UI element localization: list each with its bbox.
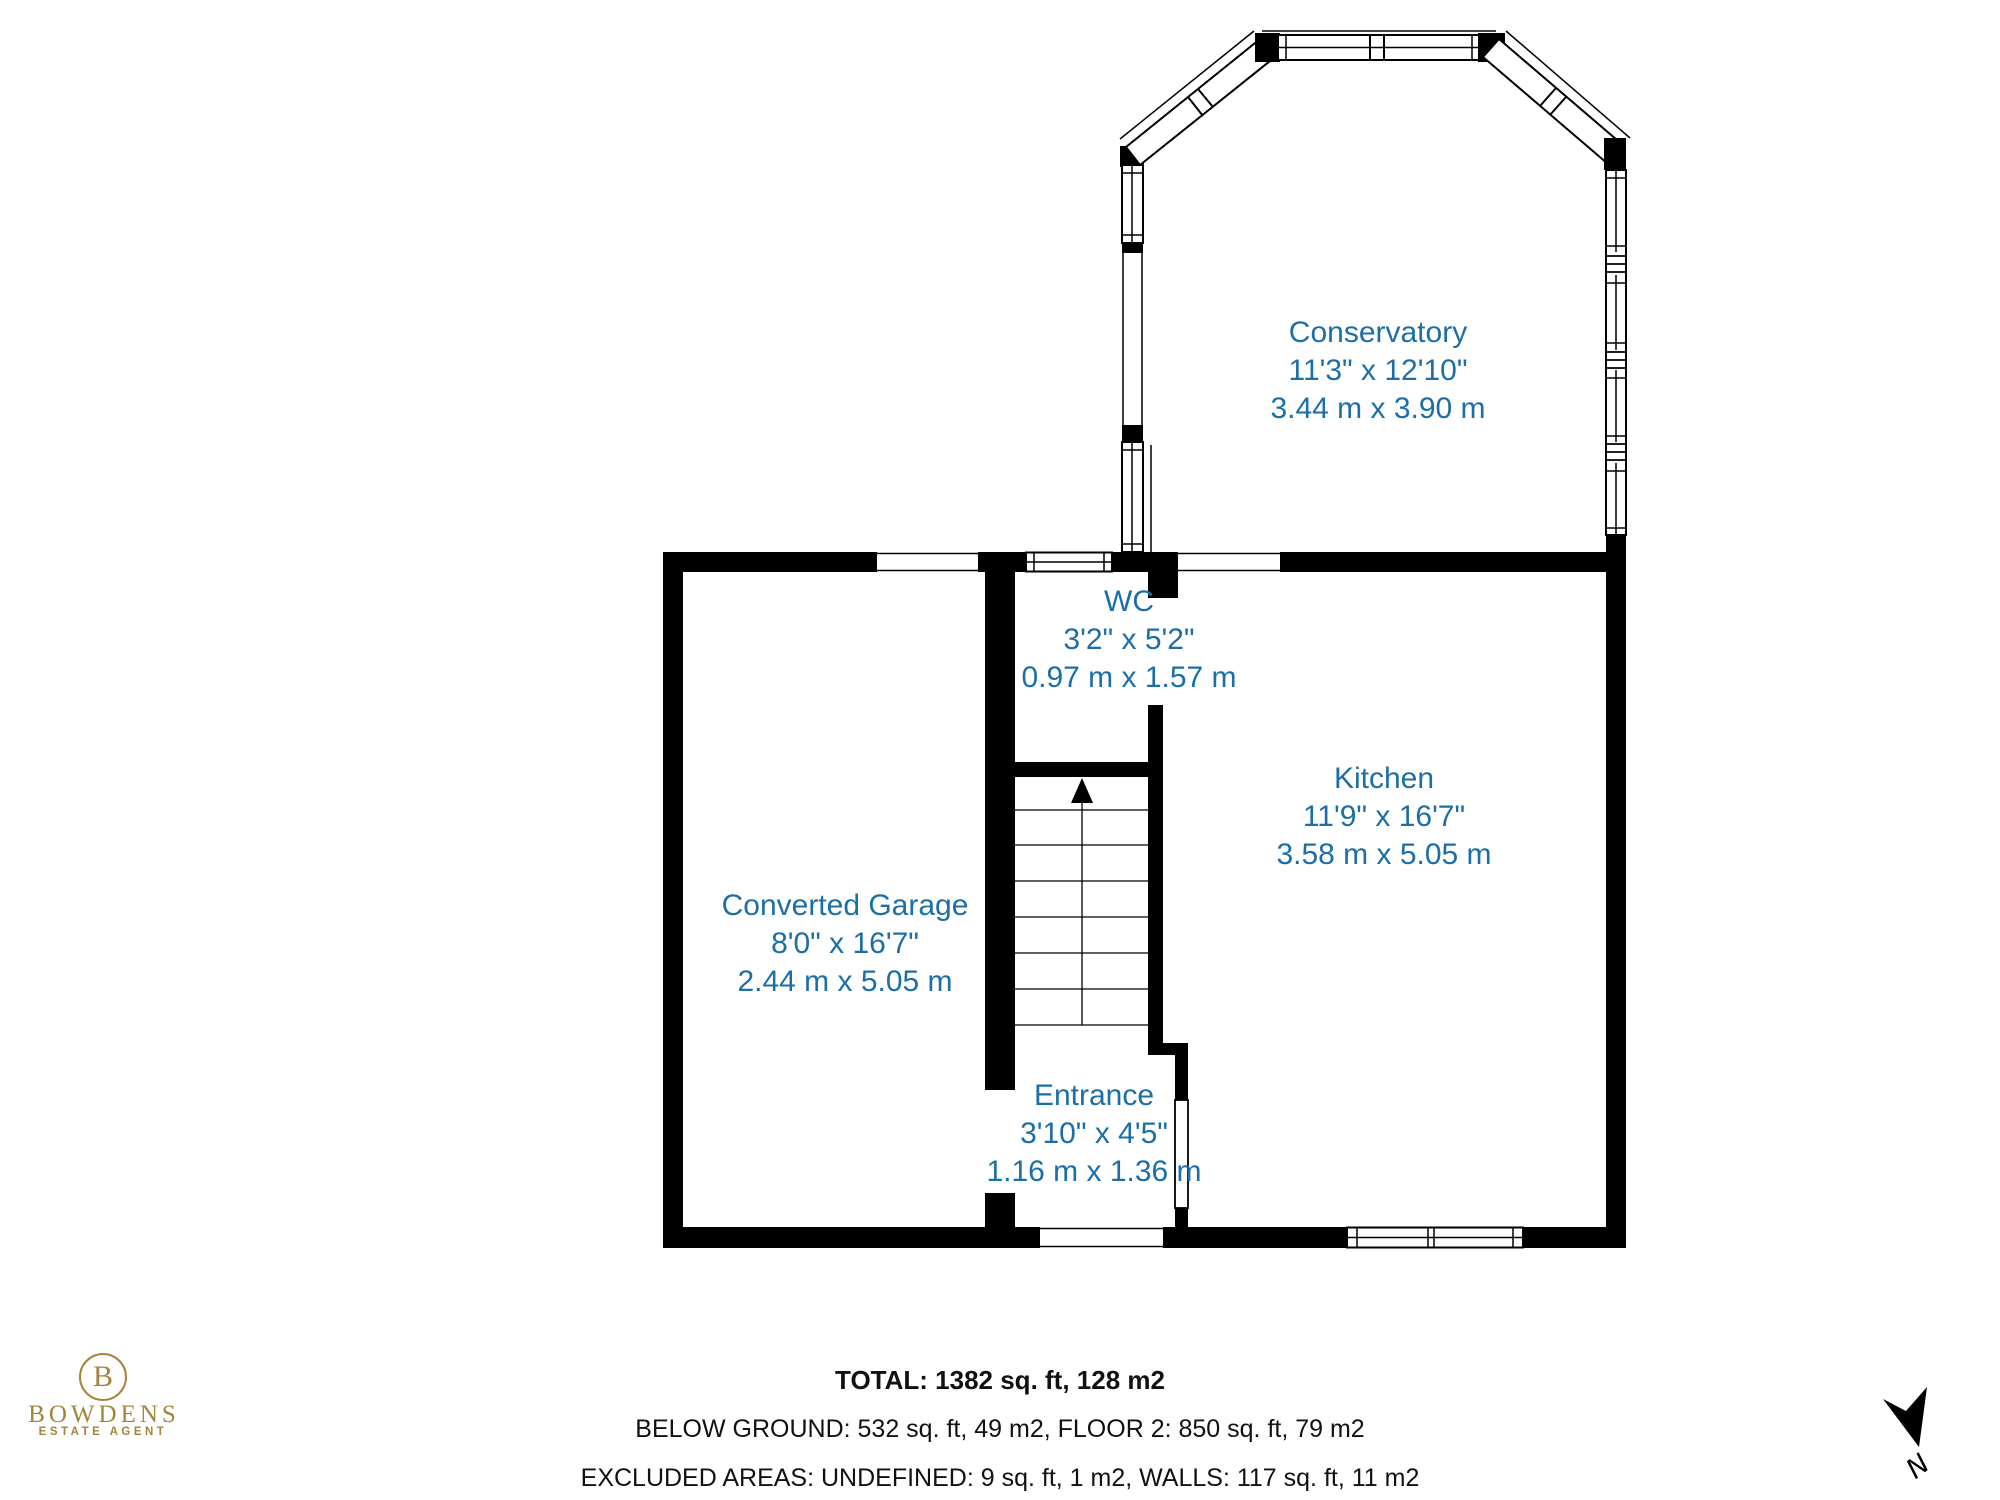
room-name: Converted Garage bbox=[722, 887, 969, 925]
total-area-text: TOTAL: 1382 sq. ft, 128 m2 bbox=[0, 1363, 2000, 1397]
room-label-kitchen: Kitchen 11'9" x 16'7" 3.58 m x 5.05 m bbox=[1276, 760, 1491, 874]
room-dim-imperial: 8'0" x 16'7" bbox=[722, 925, 969, 963]
floorplan-page: N Conservatory 11'3" x 12'10" 3.44 m x 3… bbox=[0, 0, 2000, 1500]
room-dim-imperial: 3'10" x 4'5" bbox=[986, 1115, 1201, 1153]
room-label-entrance: Entrance 3'10" x 4'5" 1.16 m x 1.36 m bbox=[986, 1077, 1201, 1191]
room-label-garage: Converted Garage 8'0" x 16'7" 2.44 m x 5… bbox=[722, 887, 969, 1001]
room-dim-metric: 3.44 m x 3.90 m bbox=[1270, 390, 1485, 428]
room-dim-metric: 0.97 m x 1.57 m bbox=[1021, 659, 1236, 697]
logo-mark: B bbox=[79, 1353, 127, 1401]
room-label-wc: WC 3'2" x 5'2" 0.97 m x 1.57 m bbox=[1021, 583, 1236, 697]
room-name: Conservatory bbox=[1270, 314, 1485, 352]
stairs-direction-arrow bbox=[1071, 778, 1093, 803]
room-dim-metric: 3.58 m x 5.05 m bbox=[1276, 836, 1491, 874]
area-breakdown-text: BELOW GROUND: 532 sq. ft, 49 m2, FLOOR 2… bbox=[0, 1412, 2000, 1446]
conservatory-bay bbox=[1120, 31, 1630, 572]
logo-tagline: ESTATE AGENT bbox=[39, 1426, 168, 1438]
logo-initial: B bbox=[93, 1360, 113, 1394]
room-name: WC bbox=[1021, 583, 1236, 621]
excluded-areas-text: EXCLUDED AREAS: UNDEFINED: 9 sq. ft, 1 m… bbox=[0, 1461, 2000, 1495]
room-name: Entrance bbox=[986, 1077, 1201, 1115]
room-dim-metric: 1.16 m x 1.36 m bbox=[986, 1153, 1201, 1191]
room-dim-imperial: 3'2" x 5'2" bbox=[1021, 621, 1236, 659]
room-label-conservatory: Conservatory 11'3" x 12'10" 3.44 m x 3.9… bbox=[1270, 314, 1485, 428]
staircase bbox=[1015, 792, 1148, 1025]
room-name: Kitchen bbox=[1276, 760, 1491, 798]
floorplan-drawing: N bbox=[0, 0, 2000, 1500]
room-dim-imperial: 11'9" x 16'7" bbox=[1276, 798, 1491, 836]
room-dim-metric: 2.44 m x 5.05 m bbox=[722, 963, 969, 1001]
logo-name: BOWDENS bbox=[28, 1401, 180, 1429]
room-dim-imperial: 11'3" x 12'10" bbox=[1270, 352, 1485, 390]
